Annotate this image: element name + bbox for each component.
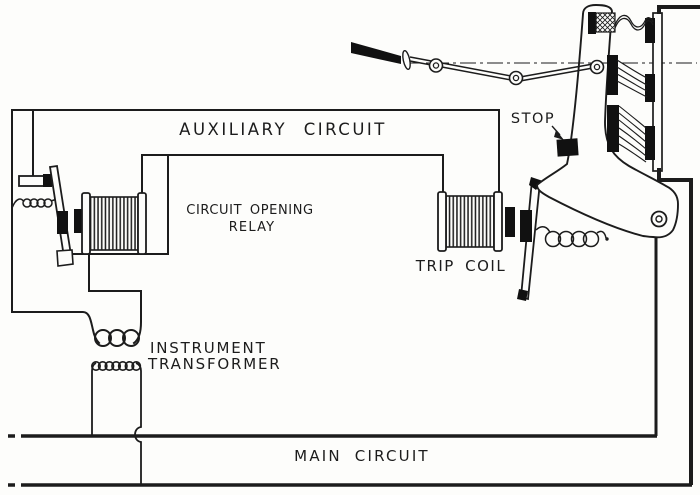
secondary-left-lead [92, 363, 96, 435]
relay-coil [82, 193, 146, 254]
label-relay-line1: CIRCUIT OPENING [186, 203, 313, 218]
latch-spring [536, 227, 609, 247]
top-right-lead [657, 7, 700, 14]
operating-handle-linkage [351, 42, 604, 85]
relay-armature-foot [57, 250, 73, 266]
breaker-tripping-diagram: AUXILIARY CIRCUIT CIRCUIT OPENING RELAY … [0, 0, 700, 495]
operating-handle [351, 42, 401, 64]
link-rod-upper [410, 57, 511, 76]
instrument-transformer [92, 330, 141, 484]
trip-coil [438, 192, 515, 251]
base-pivot [652, 212, 667, 227]
aux-second-line [142, 155, 443, 194]
rod-end-block [517, 289, 528, 301]
relay-spring [12, 199, 57, 208]
flexible-terminal-block [596, 13, 615, 32]
stationary-contact-panel [645, 13, 662, 171]
label-auxiliary-circuit: AUXILIARY CIRCUIT [179, 120, 387, 139]
relay-moving-contact [57, 211, 68, 234]
label-transformer-line2: TRANSFORMER [147, 355, 281, 373]
label-trip-coil: TRIP COIL [415, 257, 506, 275]
handle-ferrule [401, 50, 411, 70]
relay-stationary-contact [19, 176, 45, 186]
circuit-opening-relay [12, 166, 146, 266]
transformer-primary-coil [95, 330, 139, 346]
arm-pivot [591, 61, 604, 74]
trip-plunger [505, 207, 515, 237]
label-main-circuit: MAIN CIRCUIT [294, 447, 430, 465]
transformer-secondary-coil [92, 362, 141, 370]
figure-labels: AUXILIARY CIRCUIT CIRCUIT OPENING RELAY … [147, 111, 555, 465]
secondary-right-lead [135, 363, 141, 484]
primary-left-lead [12, 312, 99, 343]
laminated-brushes [617, 60, 647, 162]
latch-armature-block [520, 210, 532, 242]
label-stop: STOP [511, 111, 555, 127]
figure-page: AUXILIARY CIRCUIT CIRCUIT OPENING RELAY … [0, 0, 700, 495]
label-relay-line2: RELAY [229, 220, 276, 235]
